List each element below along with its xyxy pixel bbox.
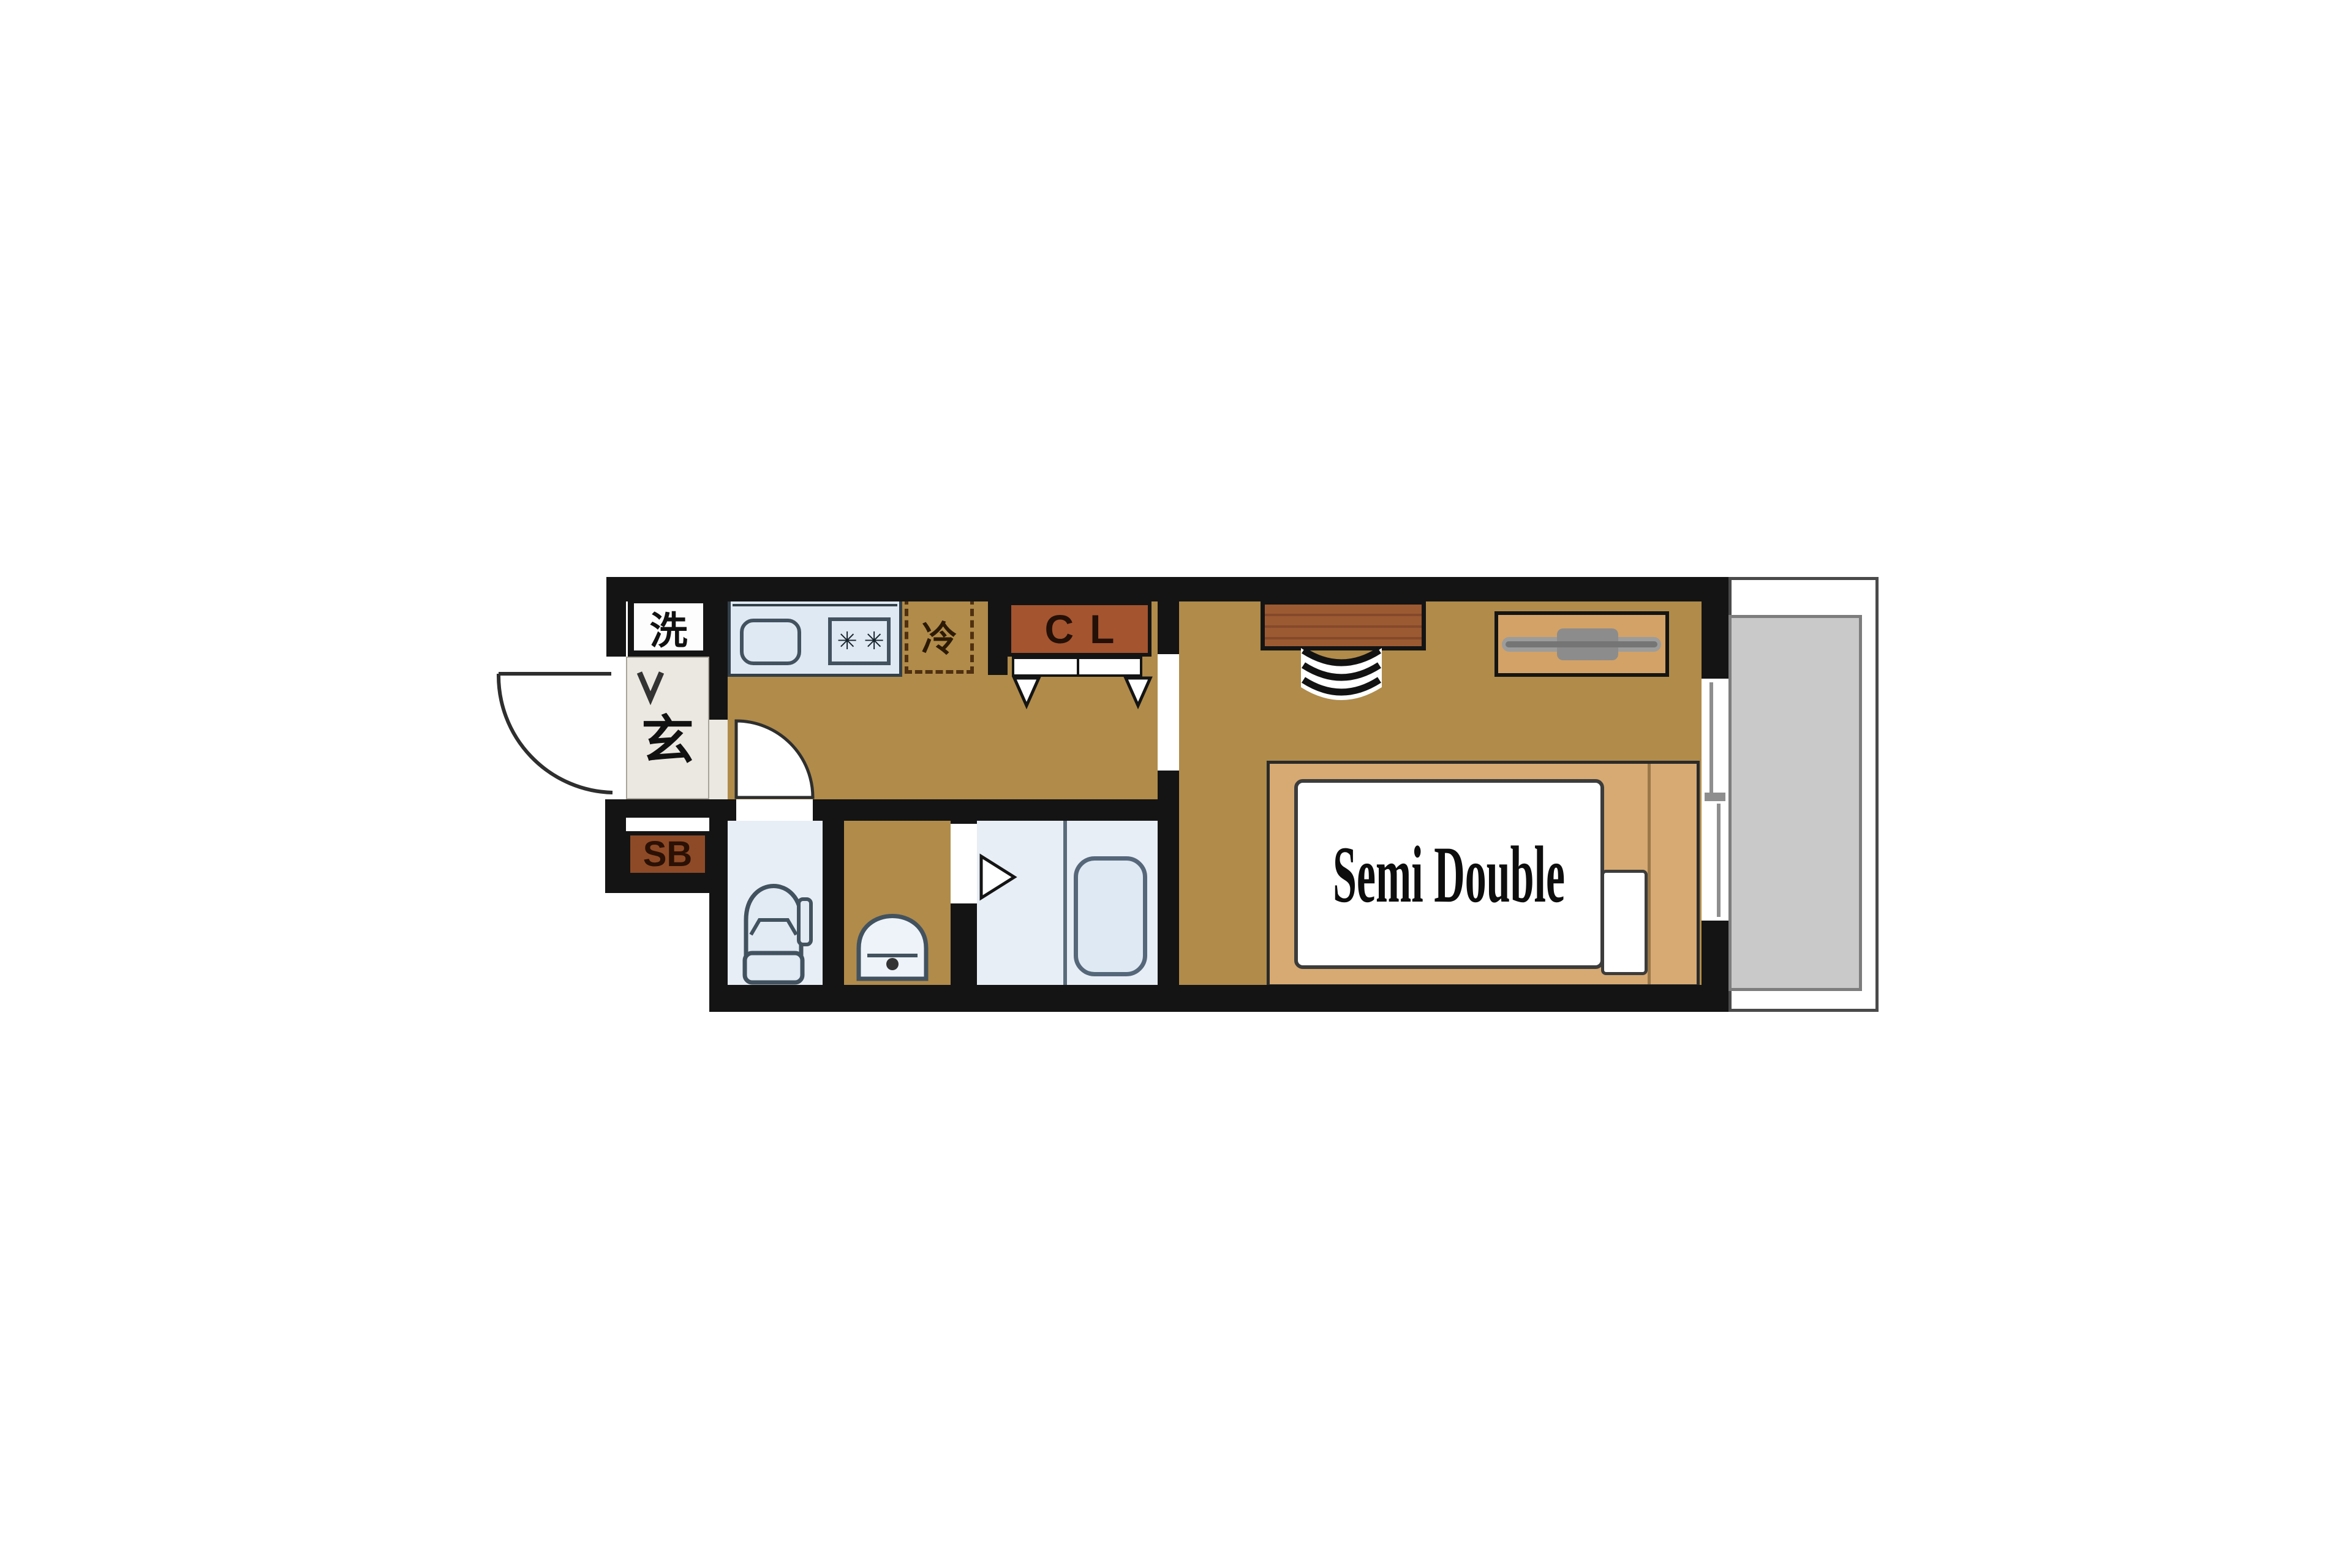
bath-door-triangle-icon [981, 856, 1014, 898]
toilet-icon [746, 886, 801, 961]
washbasin-drain [886, 958, 899, 970]
floor-plan: ✳ ✳ 冷 CL 洗 玄 SB Semi Double [0, 0, 2352, 1568]
entry-door-arc-icon [499, 674, 612, 793]
toilet-tank [745, 953, 802, 982]
closet-door-triangle-icon [1014, 678, 1039, 706]
entrance-label: 玄 [641, 697, 694, 774]
closet-door-triangle-icon [1126, 678, 1150, 706]
toilet-flush-panel [799, 899, 811, 944]
plan-shapes [0, 0, 2352, 1568]
hall-door-arc-icon [736, 721, 813, 797]
entrance-area: 玄 [626, 680, 709, 790]
